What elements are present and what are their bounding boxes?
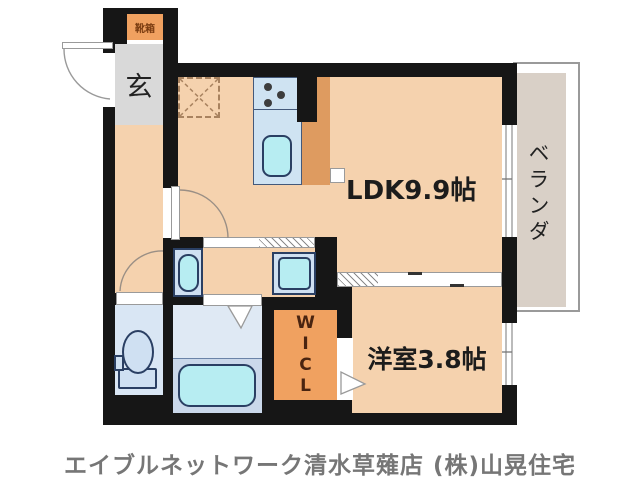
room-ldk — [178, 77, 502, 237]
window-ldk-veranda — [502, 125, 517, 237]
refrigerator-space — [178, 77, 220, 118]
hallway — [115, 125, 163, 293]
wicl-letter-i: I — [302, 334, 308, 355]
slider-track-mark — [450, 284, 464, 287]
washing-machine — [278, 257, 311, 290]
western-room-label: 洋室3.8帖 — [352, 340, 502, 376]
wicl-letter-c: C — [299, 355, 311, 376]
kitchen-sink — [262, 135, 292, 177]
entrance-opening — [103, 53, 115, 107]
entrance-label: 玄 — [126, 65, 153, 104]
toilet-side-unit — [114, 355, 124, 371]
bathroom-door — [203, 294, 262, 306]
room-ldk-lower — [337, 237, 502, 273]
washbasin-bowl — [178, 254, 199, 292]
slider-ldk-western-hatch — [338, 273, 378, 286]
slider-track-mark — [408, 272, 422, 275]
veranda-label: ベランダ — [529, 142, 553, 246]
toilet-bowl — [122, 330, 154, 374]
room-wicl: W I C L — [274, 310, 337, 400]
window-western — [502, 323, 517, 385]
shoe-box: 靴箱 — [127, 14, 163, 40]
wicl-door-opening — [337, 338, 353, 400]
wicl-letter-l: L — [300, 376, 311, 397]
toilet-door — [116, 292, 163, 305]
wicl-letter-w: W — [296, 313, 315, 334]
bathtub — [178, 364, 256, 407]
stove-burner-icon — [264, 83, 272, 91]
counter-end-post — [330, 168, 345, 183]
stove-burner-icon — [277, 91, 285, 99]
shoe-box-label: 靴箱 — [135, 20, 155, 35]
slider-ldk-washroom-hatch — [259, 238, 314, 247]
floorplan-canvas: ベランダ 靴箱 玄 W I C L — [0, 0, 640, 480]
ldk-label: LDK9.9帖 — [346, 170, 476, 207]
stove-burner-icon — [264, 99, 272, 107]
entrance-door-leaf — [62, 42, 113, 49]
kitchen-vent-wall — [297, 73, 317, 122]
realtor-caption: エイブルネットワーク清水草薙店 (株)山晃住宅 — [0, 446, 640, 480]
hall-ldk-door-leaf — [171, 186, 180, 240]
room-entrance: 玄 — [115, 44, 163, 125]
